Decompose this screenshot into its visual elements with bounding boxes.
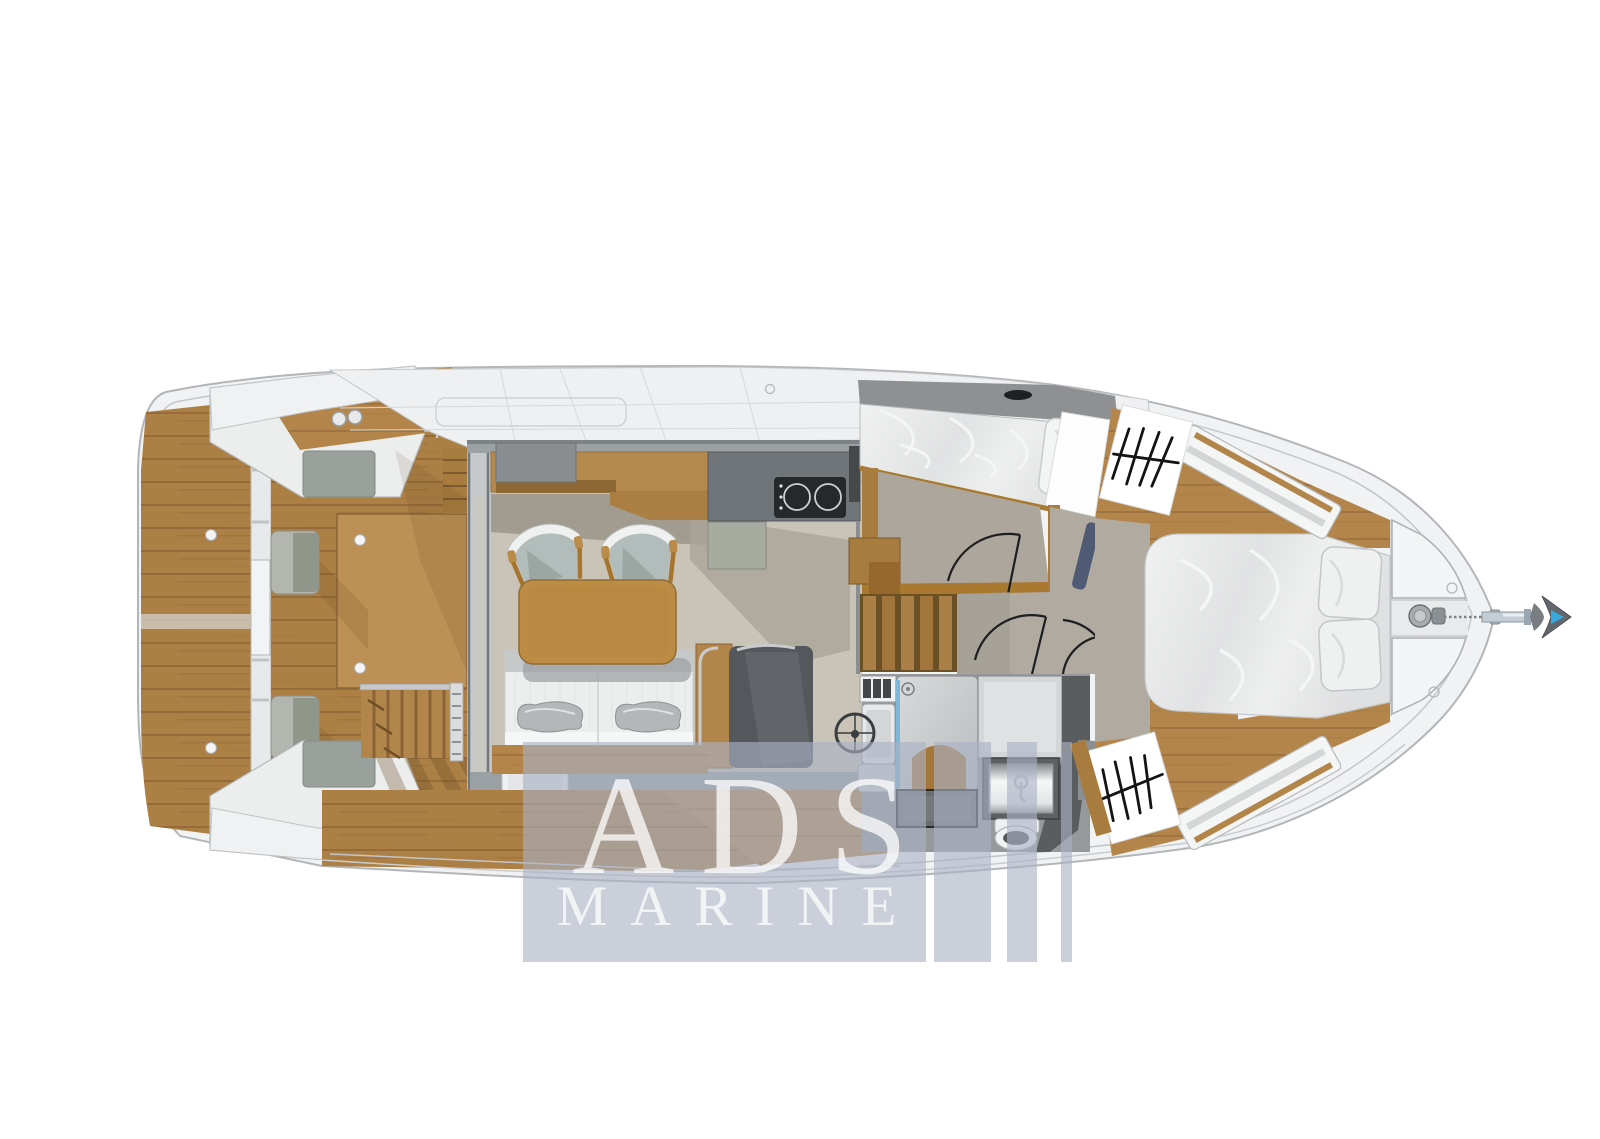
svg-text:MARINE: MARINE <box>557 875 920 938</box>
